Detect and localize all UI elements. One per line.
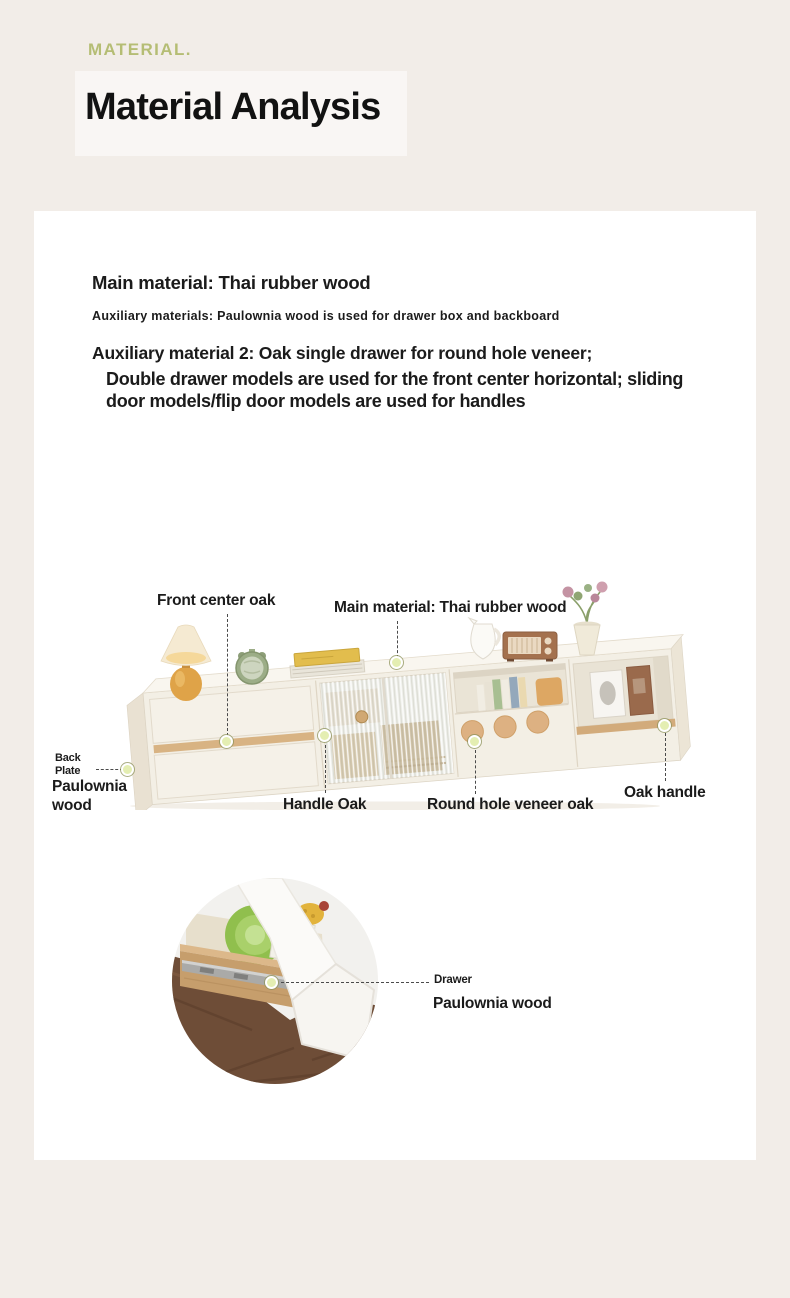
radio: [503, 632, 557, 662]
callout-drawer-paulownia-wood: Paulownia wood: [433, 995, 552, 1013]
alarm-clock: [236, 649, 268, 684]
callout-line-handle-oak: [325, 745, 326, 793]
callout-front-center-oak: Front center oak: [157, 592, 275, 610]
auxiliary-material-2-heading: Auxiliary material 2: Oak single drawer …: [92, 343, 592, 364]
callout-handle-oak: Handle Oak: [283, 796, 366, 814]
marker-oak-handle: [658, 719, 671, 732]
eyebrow-label: MATERIAL.: [88, 40, 192, 60]
callout-line-drawer: [281, 982, 429, 983]
product-material-page: MATERIAL. Material Analysis Main materia…: [0, 0, 790, 1298]
main-material-heading: Main material: Thai rubber wood: [92, 272, 371, 294]
marker-front-center-oak: [220, 735, 233, 748]
auxiliary-material-line: Auxiliary materials: Paulownia wood is u…: [92, 309, 560, 323]
callout-line-oak-handle: [665, 733, 666, 781]
marker-main-material: [390, 656, 403, 669]
page-title: Material Analysis: [85, 86, 380, 129]
detail-line-2: door models/flip door models are used fo…: [106, 391, 683, 413]
detail-line-1: Double drawer models are used for the fr…: [106, 369, 683, 391]
glass-door-module: [320, 673, 454, 784]
callout-oak-handle: Oak handle: [624, 784, 706, 802]
oak-door-knob: [355, 710, 368, 723]
callout-back-plate: Back Plate: [55, 752, 105, 778]
callout-paulownia-wood: Paulownia wood: [52, 777, 152, 815]
bread-box: [535, 677, 563, 706]
callout-line-round-hole: [475, 750, 476, 794]
auxiliary-material-2-detail: Double drawer models are used for the fr…: [106, 369, 683, 412]
marker-round-hole: [468, 735, 481, 748]
callout-round-hole-veneer-oak: Round hole veneer oak: [427, 796, 593, 814]
marker-handle-oak: [318, 729, 331, 742]
callout-line-front-center-oak: [227, 614, 228, 736]
callout-main-material: Main material: Thai rubber wood: [334, 599, 566, 617]
callout-line-main-material: [397, 621, 398, 658]
callout-drawer: Drawer: [434, 974, 472, 986]
marker-back-plate: [121, 763, 134, 776]
marker-drawer: [265, 976, 278, 989]
